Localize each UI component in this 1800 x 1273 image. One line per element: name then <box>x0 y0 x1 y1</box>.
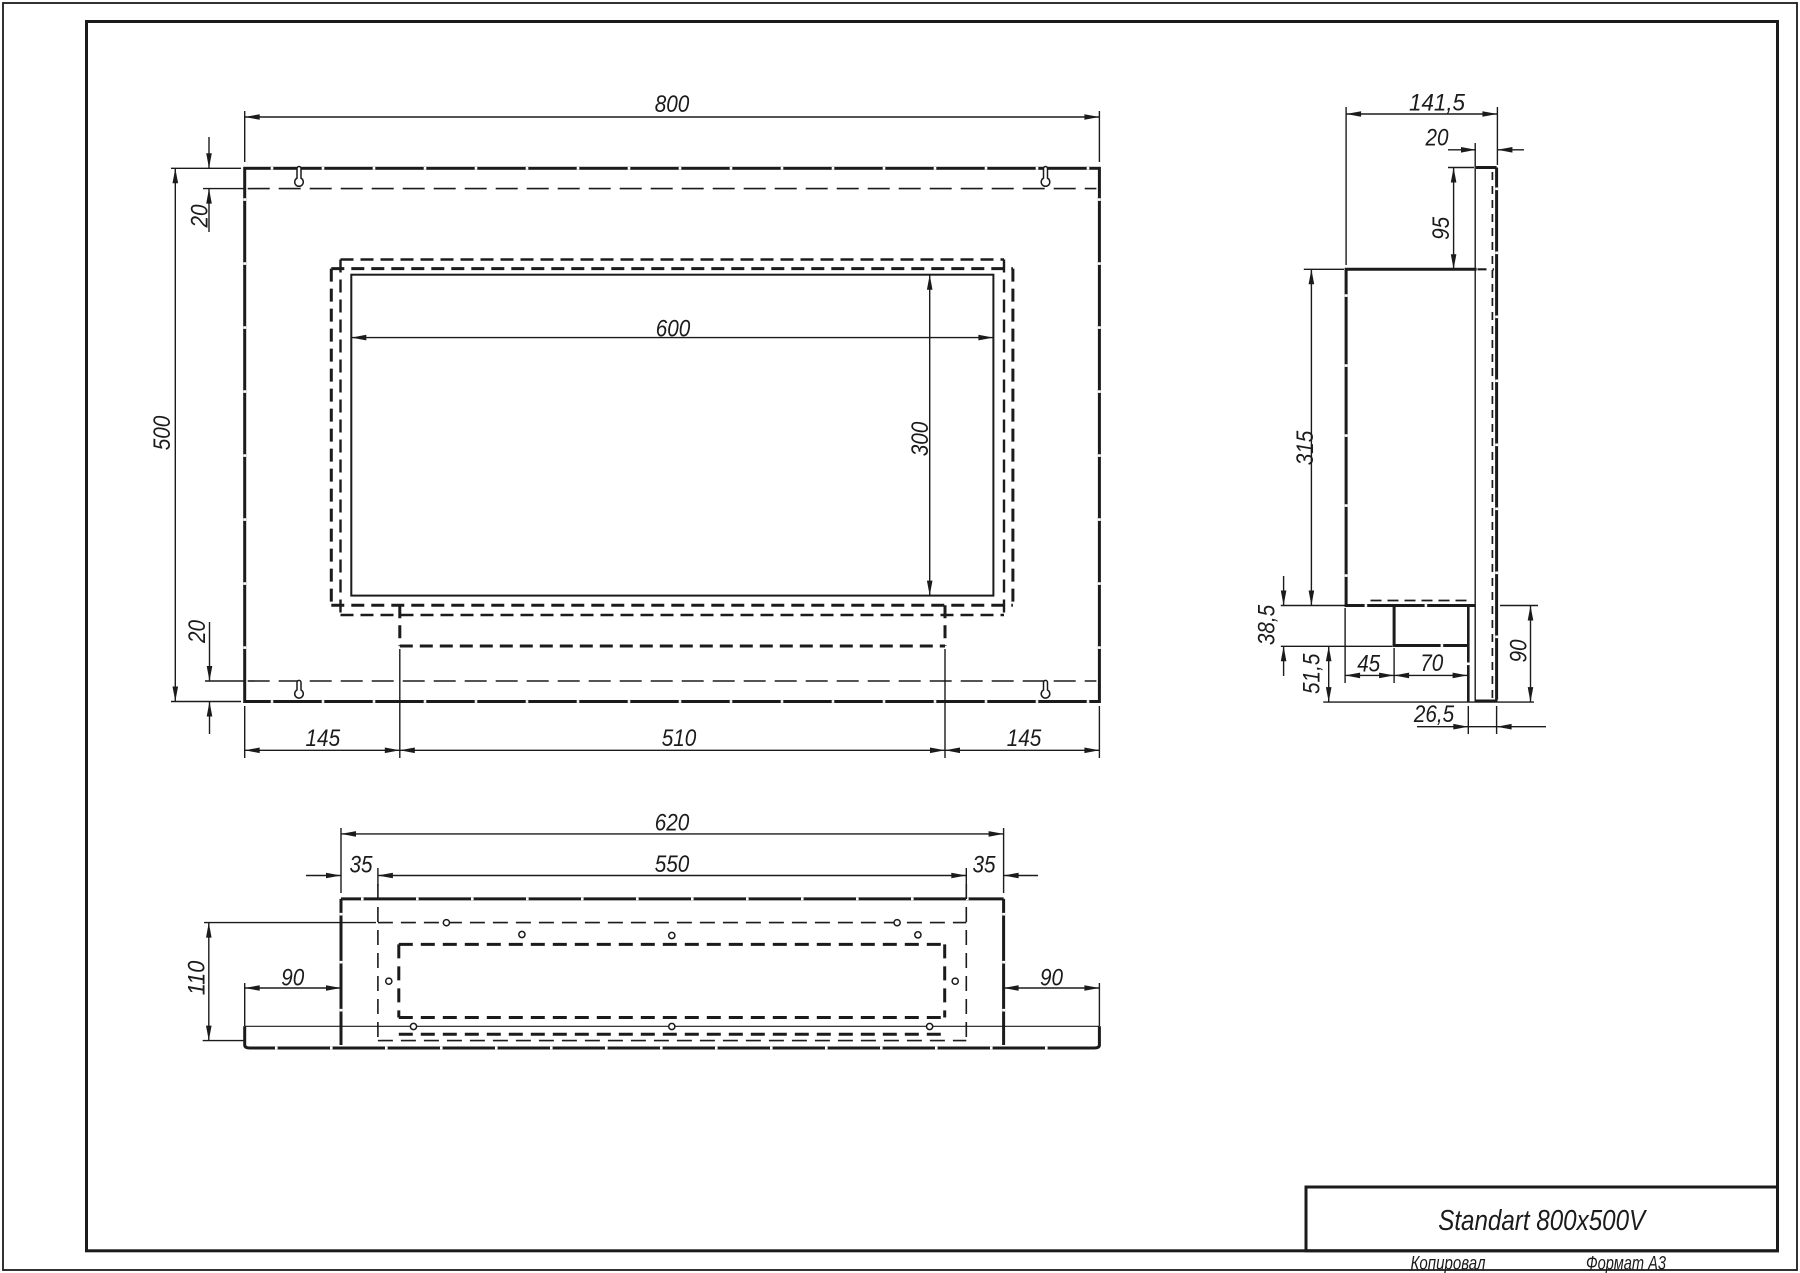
svg-text:510: 510 <box>662 725 697 752</box>
svg-text:90: 90 <box>1040 964 1064 991</box>
svg-text:20: 20 <box>184 619 211 643</box>
svg-text:315: 315 <box>1292 430 1319 465</box>
svg-text:38,5: 38,5 <box>1254 604 1281 645</box>
svg-text:90: 90 <box>281 964 305 991</box>
svg-text:35: 35 <box>973 851 997 878</box>
svg-text:20: 20 <box>186 204 213 228</box>
svg-text:800: 800 <box>655 91 690 118</box>
svg-text:Формат А3: Формат А3 <box>1586 1254 1666 1273</box>
svg-text:51,5: 51,5 <box>1299 653 1326 694</box>
svg-text:20: 20 <box>1425 125 1449 152</box>
svg-text:35: 35 <box>350 851 374 878</box>
svg-text:70: 70 <box>1420 650 1444 677</box>
svg-text:95: 95 <box>1428 216 1455 240</box>
svg-text:300: 300 <box>907 421 934 456</box>
svg-text:90: 90 <box>1506 639 1533 663</box>
svg-text:141,5: 141,5 <box>1409 89 1466 116</box>
svg-text:Копировал: Копировал <box>1411 1254 1486 1273</box>
svg-text:45: 45 <box>1357 650 1381 677</box>
svg-text:620: 620 <box>655 809 690 836</box>
svg-text:Standart 800x500V: Standart 800x500V <box>1438 1205 1647 1237</box>
svg-text:145: 145 <box>1007 725 1042 752</box>
svg-text:110: 110 <box>184 960 211 995</box>
svg-text:500: 500 <box>149 415 176 450</box>
svg-text:600: 600 <box>656 315 691 342</box>
svg-text:550: 550 <box>655 851 690 878</box>
svg-text:26,5: 26,5 <box>1413 701 1455 728</box>
svg-text:145: 145 <box>306 725 341 752</box>
